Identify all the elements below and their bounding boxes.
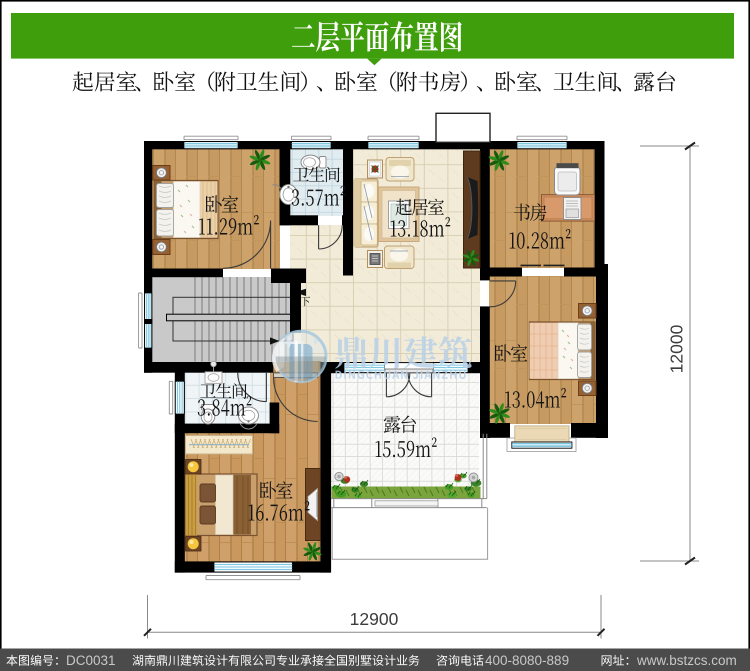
svg-text:12900: 12900 bbox=[350, 609, 399, 629]
svg-text:DC0031: DC0031 bbox=[66, 653, 116, 668]
svg-text:www.bstzcs.com: www.bstzcs.com bbox=[636, 653, 737, 668]
svg-text:400-8080-889: 400-8080-889 bbox=[485, 653, 569, 668]
svg-text:12000: 12000 bbox=[667, 324, 687, 373]
